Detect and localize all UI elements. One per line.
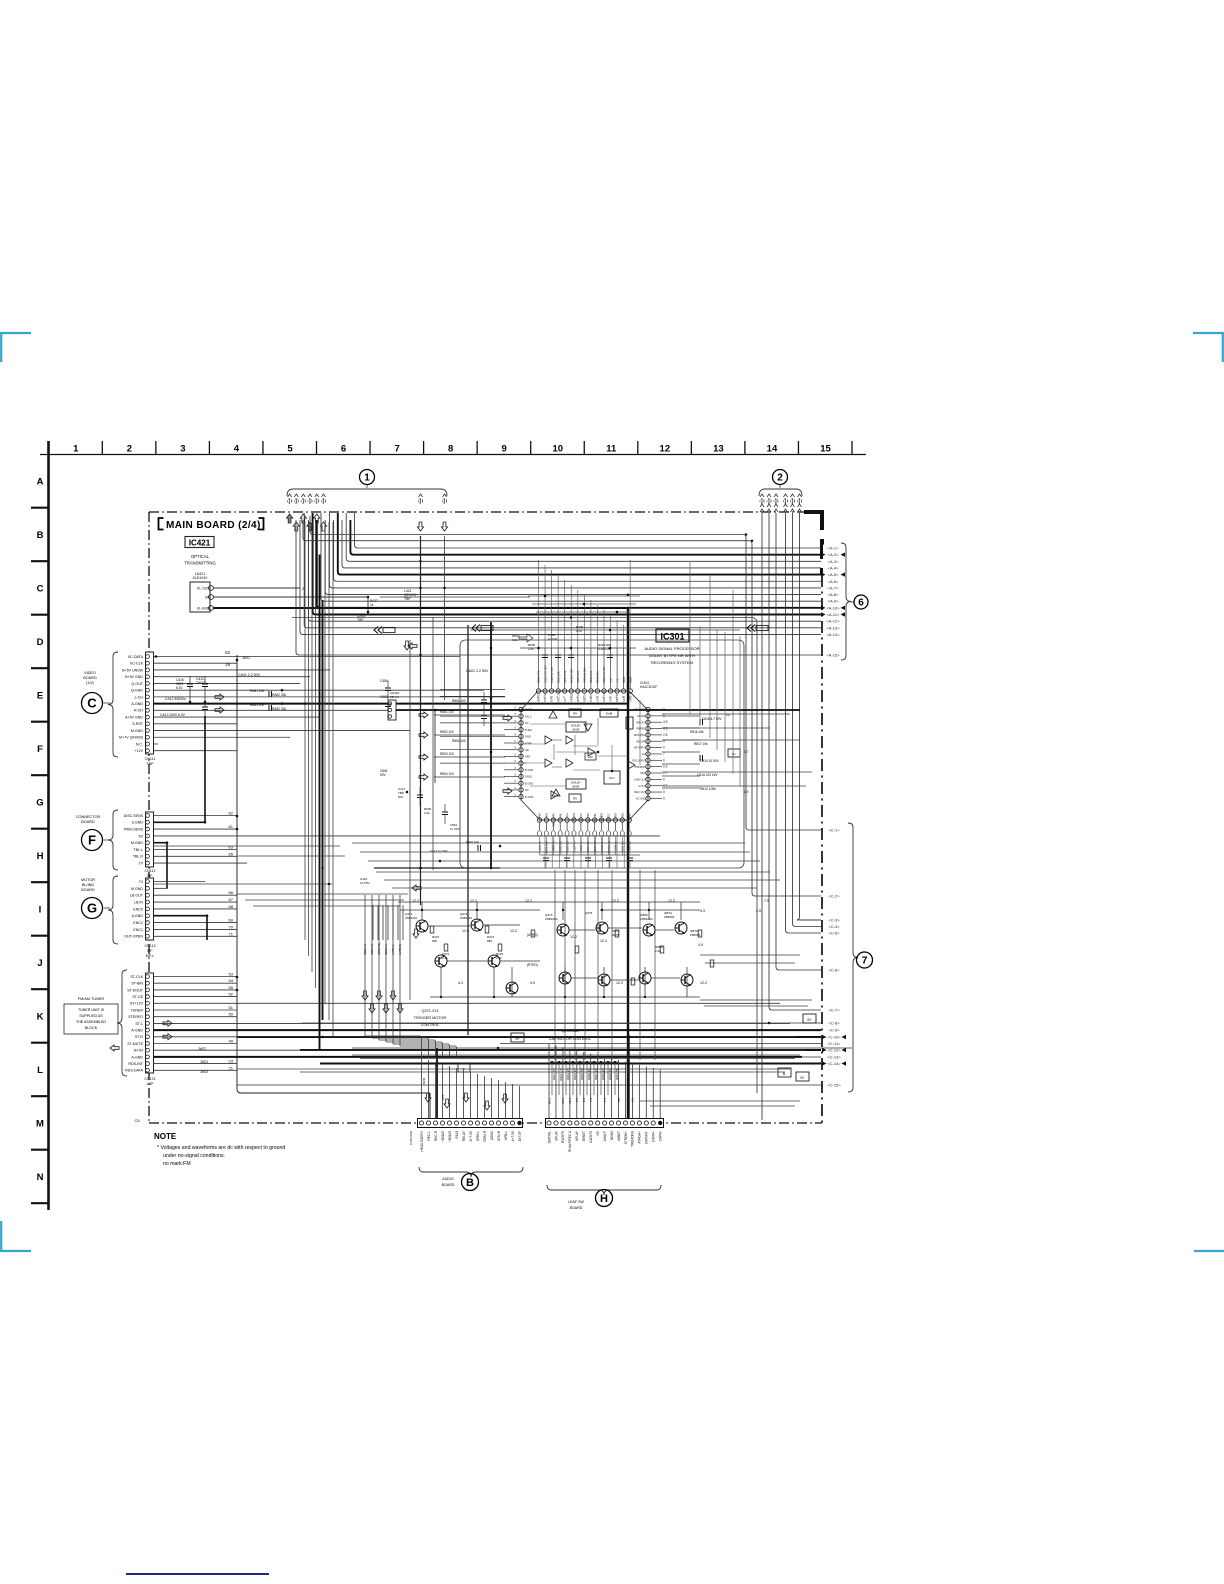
svg-text:1u 50V: 1u 50V: [450, 827, 460, 831]
svg-text:Q-GND: Q-GND: [131, 689, 143, 693]
svg-text:<A-6>: <A-6>: [828, 579, 840, 584]
svg-text:L: L: [37, 1065, 43, 1076]
svg-text:B GND: B GND: [525, 795, 533, 799]
svg-text:2.7: 2.7: [663, 771, 668, 775]
svg-text:RA82 33k: RA82 33k: [272, 693, 286, 697]
svg-text:14: 14: [767, 444, 778, 455]
svg-text:NC: NC: [563, 698, 567, 702]
svg-text:TRIGGER MOTOR: TRIGGER MOTOR: [414, 1016, 447, 1020]
svg-text:OSC F: OSC F: [579, 813, 583, 821]
svg-text:JW11: JW11: [242, 656, 250, 660]
svg-text:(RTRG): (RTRG): [527, 963, 538, 967]
svg-text:SALC: SALC: [525, 714, 532, 718]
svg-text:B GND: B GND: [525, 781, 533, 785]
svg-text:5V: 5V: [139, 834, 144, 838]
svg-text:REC/PB: REC/PB: [636, 739, 646, 743]
svg-text:50V: 50V: [380, 773, 387, 777]
svg-text:29: 29: [225, 662, 230, 667]
svg-text:B+: B+: [516, 1037, 520, 1041]
svg-text:Q371-374: Q371-374: [422, 1009, 439, 1013]
svg-text:R861 100: R861 100: [452, 699, 466, 703]
svg-text:(ATRG): (ATRG): [527, 933, 538, 937]
svg-text:Q375: Q375: [585, 911, 593, 915]
svg-text:CAPM+: CAPM+: [652, 1131, 656, 1142]
svg-text:J: J: [37, 958, 42, 969]
svg-text:+12V: +12V: [135, 749, 144, 753]
svg-text:2.2k: 2.2k: [655, 949, 661, 953]
svg-text:A-GND: A-GND: [131, 1029, 143, 1033]
svg-text:IN AMP: IN AMP: [637, 714, 646, 718]
svg-text:<C-4>: <C-4>: [828, 924, 840, 929]
svg-text:GND: GND: [525, 735, 531, 739]
svg-text:<C-7>: <C-7>: [828, 1008, 840, 1013]
svg-text:PB EQ: PB EQ: [569, 694, 573, 702]
svg-text:TUNER UNIT IS: TUNER UNIT IS: [78, 1008, 105, 1012]
svg-text:1.9: 1.9: [744, 790, 749, 794]
svg-text:ST-DOUT: ST-DOUT: [127, 988, 144, 992]
svg-text:BL/IND: BL/IND: [82, 883, 94, 887]
svg-text:LINE OUT: LINE OUT: [634, 777, 646, 781]
svg-text:RV301 TBP: RV301 TBP: [569, 669, 573, 683]
svg-text:LSP: LSP: [147, 1082, 154, 1086]
svg-text:50V: 50V: [398, 795, 403, 799]
svg-text:2SB105A: 2SB105A: [545, 917, 558, 921]
svg-text:4.5: 4.5: [663, 727, 668, 731]
svg-text:R1#3: R1#3: [455, 1131, 459, 1139]
svg-text:ALC: ALC: [609, 776, 614, 780]
svg-text:<A-10>: <A-10>: [826, 605, 840, 610]
svg-text:PB B: PB B: [545, 813, 549, 819]
svg-text:12.2: 12.2: [510, 929, 517, 933]
svg-text:AY7.5F: AY7.5F: [518, 1131, 522, 1141]
svg-text:B: B: [466, 1177, 474, 1189]
svg-text:BOARD: BOARD: [81, 820, 95, 824]
svg-text:R87B: R87B: [612, 933, 620, 937]
svg-text:RA51 100: RA51 100: [250, 703, 264, 707]
svg-text:X-RST: X-RST: [132, 722, 144, 726]
svg-text:R817 10k: R817 10k: [694, 742, 708, 746]
svg-text:+5V: +5V: [596, 1130, 600, 1137]
svg-text:under no-signal conditions.: under no-signal conditions.: [163, 1153, 225, 1159]
svg-text:7: 7: [663, 752, 665, 756]
svg-text:M+7V (UNSW): M+7V (UNSW): [119, 736, 143, 740]
svg-text:C307 0.27: C307 0.27: [576, 670, 580, 683]
svg-text:B6.1: B6.1: [547, 1098, 551, 1105]
svg-text:MOTOR: MOTOR: [81, 878, 95, 882]
svg-text:<C-11>: <C-11>: [827, 1041, 841, 1046]
svg-text:<A-13>: <A-13>: [826, 625, 840, 630]
svg-text:TRANSMITTING: TRANSMITTING: [184, 561, 215, 566]
svg-text:G: G: [36, 798, 43, 809]
svg-text:SUPPLIED AS: SUPPLIED AS: [79, 1014, 103, 1018]
svg-text:70: 70: [229, 924, 234, 929]
svg-text:TUNER: TUNER: [131, 1008, 144, 1012]
svg-text:4.9: 4.9: [530, 981, 535, 985]
svg-text:9: 9: [502, 444, 507, 455]
svg-text:ENC2: ENC2: [133, 921, 143, 925]
svg-text:B+5V: B+5V: [134, 1049, 143, 1053]
svg-text:M.GND: M.GND: [131, 887, 143, 891]
svg-text:52: 52: [229, 992, 234, 997]
svg-text:S.GND: S.GND: [132, 821, 144, 825]
svg-text:GND2: GND2: [525, 775, 533, 779]
svg-text:2SB1115: 2SB1115: [405, 916, 417, 920]
svg-text:CAPM-: CAPM-: [659, 1131, 663, 1141]
svg-text:(REC-R): (REC-R): [370, 944, 374, 956]
svg-text:PB CAL: PB CAL: [593, 812, 597, 822]
svg-text:C322 0.1 16V: C322 0.1 16V: [602, 666, 606, 683]
svg-text:<A-15>: <A-15>: [826, 653, 840, 658]
svg-text:69: 69: [229, 918, 234, 923]
svg-text:R305 22k: R305 22k: [556, 671, 560, 683]
svg-text:IIC-CLK: IIC-CLK: [130, 662, 143, 666]
svg-text:680: 680: [432, 939, 437, 943]
svg-text:M-GND: M-GND: [131, 729, 144, 733]
svg-text:FM/AM TUNER: FM/AM TUNER: [78, 997, 105, 1001]
svg-text:12.2: 12.2: [525, 899, 532, 903]
svg-text:B.FIL: B.FIL: [550, 695, 554, 702]
svg-text:RDS-DATA: RDS-DATA: [125, 1069, 143, 1073]
svg-text:(APB-R): (APB-R): [398, 944, 402, 955]
svg-text:5TB/MON: 5TB/MON: [634, 765, 646, 769]
svg-text:B9N5T: B9N5T: [582, 1131, 586, 1141]
svg-text:A8N5T: A8N5T: [617, 1131, 621, 1141]
svg-text:ST-BIN: ST-BIN: [131, 982, 143, 986]
svg-text:C5: C5: [134, 1118, 140, 1123]
svg-text:(DRM-L): (DRM-L): [384, 944, 388, 956]
svg-text:REC-L: REC-L: [427, 1131, 431, 1141]
svg-text:RDS-INT: RDS-INT: [128, 1062, 143, 1066]
svg-text:* Voltages and waveforms are d: * Voltages and waveforms are dc with res…: [157, 1145, 285, 1151]
svg-text:APB-L: APB-L: [504, 1131, 508, 1140]
svg-text:JW22: JW22: [200, 1070, 208, 1074]
svg-text:R851 100: R851 100: [440, 710, 454, 714]
svg-text:KL-OUT: KL-OUT: [197, 587, 209, 591]
svg-text:-7.1: -7.1: [615, 678, 619, 683]
svg-text:ST-CLK: ST-CLK: [130, 975, 143, 979]
svg-text:12.2: 12.2: [470, 899, 477, 903]
svg-text:TBP: TBP: [404, 597, 411, 601]
svg-text:C417 1u 50V: C417 1u 50V: [430, 849, 448, 853]
svg-text:NF B: NF B: [622, 696, 626, 702]
svg-text:54: 54: [229, 978, 234, 983]
svg-text:65: 65: [229, 851, 234, 856]
svg-text:NR OUT: NR OUT: [636, 720, 646, 724]
svg-text:TBL.R: TBL.R: [133, 855, 144, 859]
svg-text:DRM-R: DRM-R: [483, 1130, 487, 1141]
svg-text:RA81 100: RA81 100: [250, 689, 264, 693]
svg-text:SPLAY: SPLAY: [554, 1130, 558, 1141]
svg-text:ENC1: ENC1: [133, 928, 143, 932]
svg-text:12.2: 12.2: [616, 981, 623, 985]
svg-text:L-CH: L-CH: [135, 695, 144, 699]
svg-text:B+: B+: [801, 1076, 805, 1080]
svg-text:C401 2.2 50V: C401 2.2 50V: [238, 673, 261, 677]
svg-text:55: 55: [229, 985, 234, 990]
svg-text:1: 1: [73, 444, 79, 455]
svg-text:MUTE1: MUTE1: [537, 693, 541, 702]
svg-text:DOLBY BTYPE NR WITH: DOLBY BTYPE NR WITH: [649, 653, 695, 658]
svg-text:R9: R9: [573, 797, 577, 801]
svg-text:ST+12V: ST+12V: [130, 1002, 144, 1006]
svg-text:C305 0.47 50V: C305 0.47 50V: [543, 665, 547, 683]
svg-text:THE ASSEMBLED: THE ASSEMBLED: [76, 1020, 106, 1024]
svg-text:(DRM-R): (DRM-R): [377, 943, 381, 955]
svg-text:TREMONS: TREMONS: [631, 1131, 635, 1147]
svg-text:10.4: 10.4: [568, 1098, 572, 1104]
svg-text:AC GND: AC GND: [636, 797, 646, 801]
svg-text:IIC-DATA: IIC-DATA: [128, 655, 143, 659]
svg-text:A+7.5V: A+7.5V: [469, 1130, 473, 1141]
svg-text:R123/75: R123/75: [561, 1131, 565, 1143]
svg-text:5: 5: [287, 444, 293, 455]
svg-text:MP-L: MP-L: [146, 954, 155, 958]
svg-text:C304 2.2k: C304 2.2k: [563, 670, 567, 683]
svg-text:A OUT: A OUT: [638, 784, 646, 788]
svg-text:2: 2: [127, 444, 132, 455]
svg-text:DOL CAL: DOL CAL: [602, 690, 606, 702]
svg-text:49: 49: [229, 1039, 234, 1044]
svg-text:R852 100: R852 100: [440, 730, 454, 734]
svg-text:LINE B: LINE B: [600, 813, 604, 821]
svg-text:7V: 7V: [139, 880, 144, 884]
svg-text:JW41: JW41: [422, 1077, 426, 1085]
svg-text:DRM-L: DRM-L: [476, 1131, 480, 1141]
svg-text:CA01 2.2 50V: CA01 2.2 50V: [466, 669, 489, 673]
svg-text:RELAY: RELAY: [462, 1130, 466, 1141]
svg-text:HA1CD1SF: HA1CD1SF: [640, 685, 657, 689]
svg-text:A.FIL: A.FIL: [596, 695, 600, 702]
svg-text:LB.IN: LB.IN: [134, 900, 143, 904]
svg-text:6: 6: [858, 598, 864, 609]
svg-text:MF: MF: [147, 874, 153, 878]
svg-text:62: 62: [229, 811, 234, 816]
svg-text:NR: NR: [525, 748, 529, 752]
svg-text:R853 100: R853 100: [440, 752, 454, 756]
svg-text:R854 100: R854 100: [440, 772, 454, 776]
svg-text:MPX B: MPX B: [572, 813, 576, 821]
svg-text:REC CAL: REC CAL: [556, 690, 560, 702]
svg-text:no mark:FM: no mark:FM: [163, 1161, 191, 1167]
svg-text:CONNECTOR: CONNECTOR: [76, 815, 101, 819]
svg-text:S3: S3: [225, 650, 231, 655]
svg-text:C306 1E 50V: C306 1E 50V: [550, 667, 554, 683]
svg-text:<C-3>: <C-3>: [828, 918, 840, 923]
svg-text:F: F: [37, 744, 43, 755]
svg-text:K: K: [37, 1012, 44, 1023]
svg-text:C81A 100 16V: C81A 100 16V: [697, 773, 718, 777]
svg-text:LEAF SW: LEAF SW: [568, 1200, 584, 1204]
svg-text:13: 13: [713, 444, 724, 455]
svg-text:R306 4.7k: R306 4.7k: [537, 670, 541, 683]
svg-text:AUDIO: AUDIO: [442, 1177, 454, 1181]
svg-text:9.7: 9.7: [575, 1098, 579, 1103]
svg-text:68: 68: [229, 904, 234, 909]
svg-text:<C-9>: <C-9>: [828, 1028, 840, 1033]
svg-text:BOARD: BOARD: [81, 888, 95, 892]
svg-text:ST-CE: ST-CE: [132, 995, 143, 999]
svg-text:MON B: MON B: [620, 813, 624, 822]
svg-text:SW5TAL: SW5TAL: [547, 1131, 551, 1144]
svg-text:1k: 1k: [370, 603, 374, 607]
svg-text:VIDEO: VIDEO: [84, 671, 96, 675]
svg-text:7V: 7V: [139, 862, 144, 866]
svg-text:G: G: [87, 901, 97, 916]
svg-text:<C-14>: <C-14>: [827, 1061, 841, 1066]
svg-text:R491 10k: R491 10k: [466, 840, 479, 844]
svg-text:AGND: AGND: [490, 1130, 494, 1140]
svg-text:F: F: [88, 833, 96, 848]
svg-text:<A-2>: <A-2>: [828, 552, 840, 557]
svg-text:4.9: 4.9: [698, 943, 703, 947]
svg-text:4.9: 4.9: [663, 720, 668, 724]
svg-text:12: 12: [660, 444, 671, 455]
svg-text:NF A: NF A: [565, 813, 569, 819]
svg-text:50: 50: [229, 1012, 234, 1017]
svg-text:TBL.L: TBL.L: [133, 848, 143, 852]
svg-text:ST-R: ST-R: [135, 1035, 144, 1039]
svg-text:<A-9>: <A-9>: [828, 599, 840, 604]
svg-text:B-NR: B-NR: [573, 785, 580, 789]
svg-text:LINE IN: LINE IN: [589, 693, 593, 702]
svg-text:A GND: A GND: [538, 813, 542, 821]
svg-text:A.GND: A.GND: [132, 914, 144, 918]
svg-text:R323 820: R323 820: [596, 671, 600, 683]
svg-text:<C-10>: <C-10>: [827, 1035, 841, 1040]
svg-text:A SEL: A SEL: [525, 741, 533, 745]
svg-text:I: I: [39, 905, 42, 916]
svg-text:B+5V UNSW: B+5V UNSW: [122, 668, 143, 672]
svg-text:1: 1: [364, 473, 370, 484]
svg-text:A+7.5V: A+7.5V: [511, 1130, 515, 1141]
svg-text:<A-7>: <A-7>: [828, 585, 840, 590]
svg-text:8.8: 8.8: [617, 1098, 621, 1103]
svg-text:<C-5>: <C-5>: [828, 931, 840, 936]
svg-text:NC: NC: [525, 788, 529, 792]
svg-text:H: H: [37, 851, 44, 862]
svg-text:OPTICAL: OPTICAL: [191, 554, 210, 559]
svg-text:R324: R324: [622, 676, 626, 683]
svg-text:7.5: 7.5: [589, 1098, 593, 1103]
svg-text:N.C.: N.C.: [136, 742, 143, 746]
svg-text:12.2: 12.2: [412, 899, 419, 903]
svg-text:REC C: REC C: [607, 813, 611, 821]
svg-text:BOARD: BOARD: [83, 676, 97, 680]
svg-text:0: 0: [663, 777, 665, 781]
svg-text:(APB-L): (APB-L): [391, 944, 395, 955]
svg-text:0: 0: [663, 758, 665, 762]
svg-text:A-GND: A-GND: [131, 1055, 143, 1059]
svg-text:C: C: [87, 696, 97, 711]
svg-text:RA52 33k: RA52 33k: [272, 707, 286, 711]
svg-text:VEE: VEE: [627, 813, 631, 818]
svg-text:NOTE: NOTE: [154, 1132, 177, 1141]
svg-text:D: D: [37, 637, 44, 648]
svg-text:<A-3>: <A-3>: [828, 559, 840, 564]
svg-text:0.2k 2.2k: 0.2k 2.2k: [598, 647, 611, 651]
svg-text:4.7k: 4.7k: [576, 629, 582, 633]
svg-text:<A-1>: <A-1>: [828, 546, 840, 551]
svg-text:C324: C324: [628, 676, 632, 683]
svg-text:IC421: IC421: [189, 539, 211, 548]
svg-text:1B5055: 1B5055: [664, 915, 675, 919]
svg-text:<C-6>: <C-6>: [828, 968, 840, 973]
svg-text:12.2: 12.2: [462, 929, 469, 933]
svg-text:12.2: 12.2: [600, 939, 607, 943]
svg-text:VREF: VREF: [628, 695, 632, 702]
svg-text:CN121: CN121: [144, 1077, 155, 1081]
svg-text:10 50V: 10 50V: [360, 881, 370, 885]
svg-text:CA13 1000 6.3V: CA13 1000 6.3V: [160, 713, 186, 717]
svg-text:Q-OUT: Q-OUT: [131, 682, 143, 686]
svg-text:1B5055: 1B5055: [690, 933, 701, 937]
svg-text:ENC5: ENC5: [133, 907, 143, 911]
svg-text:+B31#5: +B31#5: [441, 1131, 445, 1142]
svg-text:63: 63: [229, 845, 234, 850]
svg-text:MAIN BOARD (2/4): MAIN BOARD (2/4): [166, 520, 261, 531]
svg-text:0.3: 0.3: [663, 765, 668, 769]
svg-text:NC: NC: [525, 721, 529, 725]
svg-text:CAPM/V-: CAPM/V-: [645, 1131, 649, 1144]
svg-text:OUT-OPEN: OUT-OPEN: [124, 935, 143, 939]
svg-text:21: 21: [229, 1065, 234, 1070]
svg-text:REC-R: REC-R: [434, 1130, 438, 1141]
svg-text:FL/B GND: FL/B GND: [409, 1130, 413, 1145]
svg-text:2.2k: 2.2k: [442, 956, 448, 960]
svg-text:2.5: 2.5: [663, 733, 668, 737]
svg-text:<A-14>: <A-14>: [826, 632, 840, 637]
svg-text:-7.1: -7.1: [609, 678, 613, 683]
svg-text:B SEL: B SEL: [525, 728, 533, 732]
svg-text:R9: R9: [573, 712, 577, 716]
svg-text:B+: B+: [808, 1018, 812, 1022]
svg-text:(REC-L): (REC-L): [363, 944, 367, 955]
svg-text:ST-L: ST-L: [135, 1022, 143, 1026]
svg-text:+B31#5: +B31#5: [448, 1131, 452, 1142]
svg-text:11: 11: [606, 444, 617, 455]
svg-text:15: 15: [820, 444, 831, 455]
svg-text:B GND: B GND: [525, 768, 533, 772]
svg-text:M: M: [36, 1119, 44, 1130]
svg-text:C814 10 50V: C814 10 50V: [700, 759, 719, 763]
svg-text:3: 3: [180, 444, 185, 455]
svg-text:R862 100: R862 100: [452, 739, 466, 743]
svg-text:OSC: OSC: [609, 696, 613, 702]
svg-text:B: B: [37, 530, 44, 541]
svg-text:22: 22: [726, 713, 730, 717]
svg-text:10 50V: 10 50V: [548, 637, 558, 641]
svg-text:C481: C481: [380, 679, 388, 683]
svg-text:0: 0: [663, 790, 665, 794]
svg-text:30dB: 30dB: [606, 712, 613, 716]
svg-text:A: A: [37, 477, 44, 488]
svg-text:23: 23: [229, 1059, 234, 1064]
svg-text:1.7: 1.7: [744, 750, 749, 754]
svg-text:D GND: D GND: [586, 813, 590, 821]
svg-text:BLOCK: BLOCK: [85, 1026, 98, 1030]
svg-text:12.2: 12.2: [612, 899, 619, 903]
svg-text:<A-11>: <A-11>: [827, 612, 840, 617]
svg-text:4.9: 4.9: [756, 909, 761, 913]
svg-text:REC MUTE: REC MUTE: [551, 813, 555, 827]
svg-text:LB.OUT: LB.OUT: [130, 894, 144, 898]
svg-text:2SB1115: 2SB1115: [460, 916, 472, 920]
svg-text:N: N: [37, 1172, 44, 1183]
svg-text:66: 66: [229, 890, 234, 895]
svg-text:2: 2: [777, 473, 783, 484]
svg-text:TBP: TBP: [147, 762, 155, 766]
svg-text:ATM-R: ATM-R: [497, 1130, 501, 1141]
